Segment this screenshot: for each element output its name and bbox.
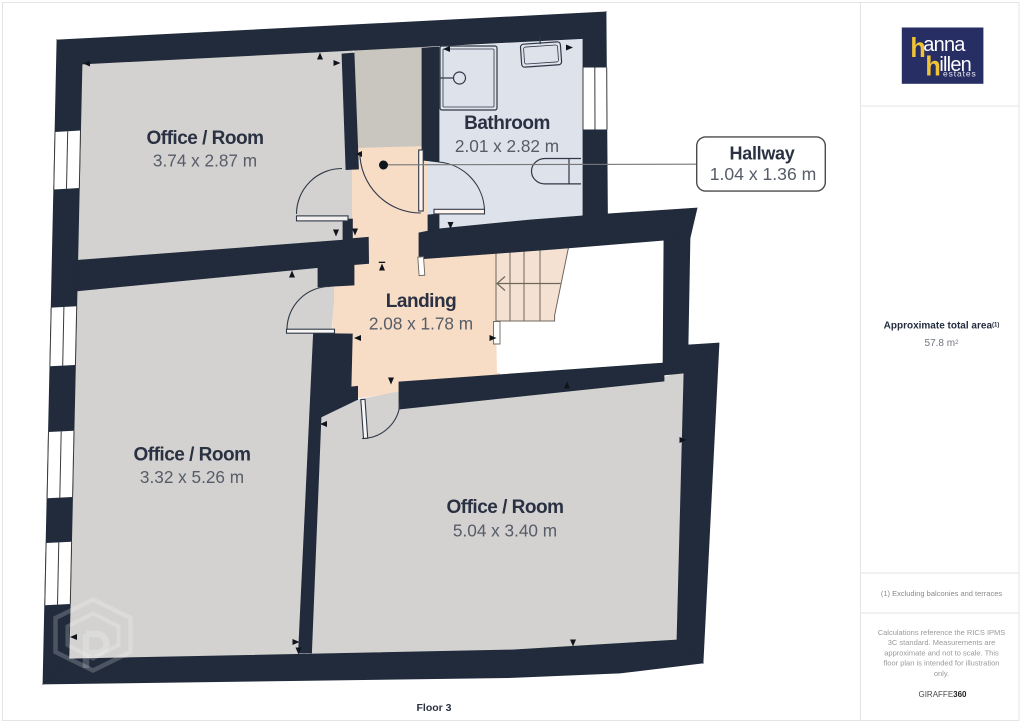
svg-text:Office / Room: Office / Room — [133, 445, 250, 466]
svg-text:2.01 x 2.82 m: 2.01 x 2.82 m — [455, 136, 559, 156]
svg-text:estates: estates — [943, 69, 977, 79]
svg-text:Calculations reference the RIC: Calculations reference the RICS IPMS — [878, 628, 1006, 637]
svg-text:1.04 x 1.36 m: 1.04 x 1.36 m — [710, 164, 817, 184]
svg-text:approximate and not to scale.: approximate and not to scale. This — [884, 648, 999, 657]
svg-text:Hallway: Hallway — [730, 144, 795, 164]
svg-text:GIRAFFE360: GIRAFFE360 — [918, 690, 967, 699]
svg-text:Bathroom: Bathroom — [464, 113, 550, 134]
svg-text:Office / Room: Office / Room — [146, 128, 263, 149]
svg-text:(1) Excluding balconies and te: (1) Excluding balconies and terraces — [881, 589, 1003, 598]
svg-text:3.32 x 5.26 m: 3.32 x 5.26 m — [140, 467, 244, 487]
svg-text:Floor 3: Floor 3 — [416, 702, 451, 714]
svg-text:5.04 x 3.40 m: 5.04 x 3.40 m — [453, 521, 557, 541]
svg-text:57.8 m2: 57.8 m2 — [925, 338, 960, 349]
svg-text:only.: only. — [934, 669, 949, 678]
svg-text:2.08 x 1.78 m: 2.08 x 1.78 m — [369, 314, 473, 334]
svg-text:Approximate total area(1): Approximate total area(1) — [884, 321, 1000, 332]
svg-text:3.74 x 2.87 m: 3.74 x 2.87 m — [153, 151, 257, 171]
svg-text:Landing: Landing — [386, 291, 456, 312]
svg-text:floor plan is intended for ill: floor plan is intended for illustration — [884, 659, 1000, 668]
svg-text:Office / Room: Office / Room — [446, 497, 563, 518]
svg-text:3C standard. Measurements are: 3C standard. Measurements are — [888, 638, 996, 647]
